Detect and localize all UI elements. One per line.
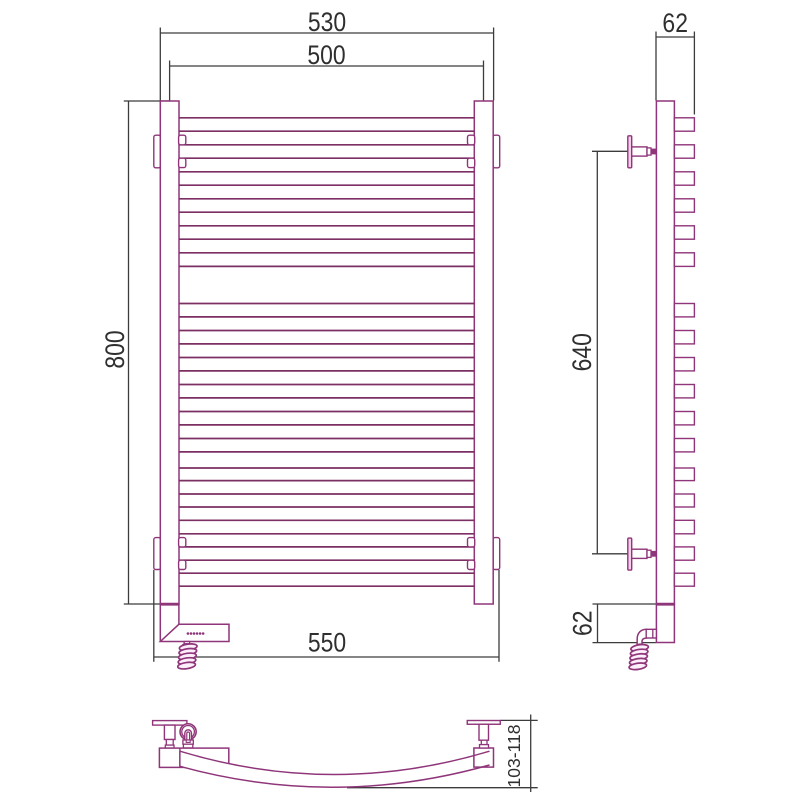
svg-text:62: 62 <box>662 8 688 38</box>
svg-text:103-118: 103-118 <box>504 725 524 788</box>
svg-text:500: 500 <box>307 40 345 70</box>
svg-text:530: 530 <box>308 7 346 37</box>
svg-text:62: 62 <box>568 610 598 636</box>
svg-text:550: 550 <box>308 628 346 658</box>
svg-text:800: 800 <box>100 330 130 368</box>
svg-text:640: 640 <box>567 333 597 371</box>
